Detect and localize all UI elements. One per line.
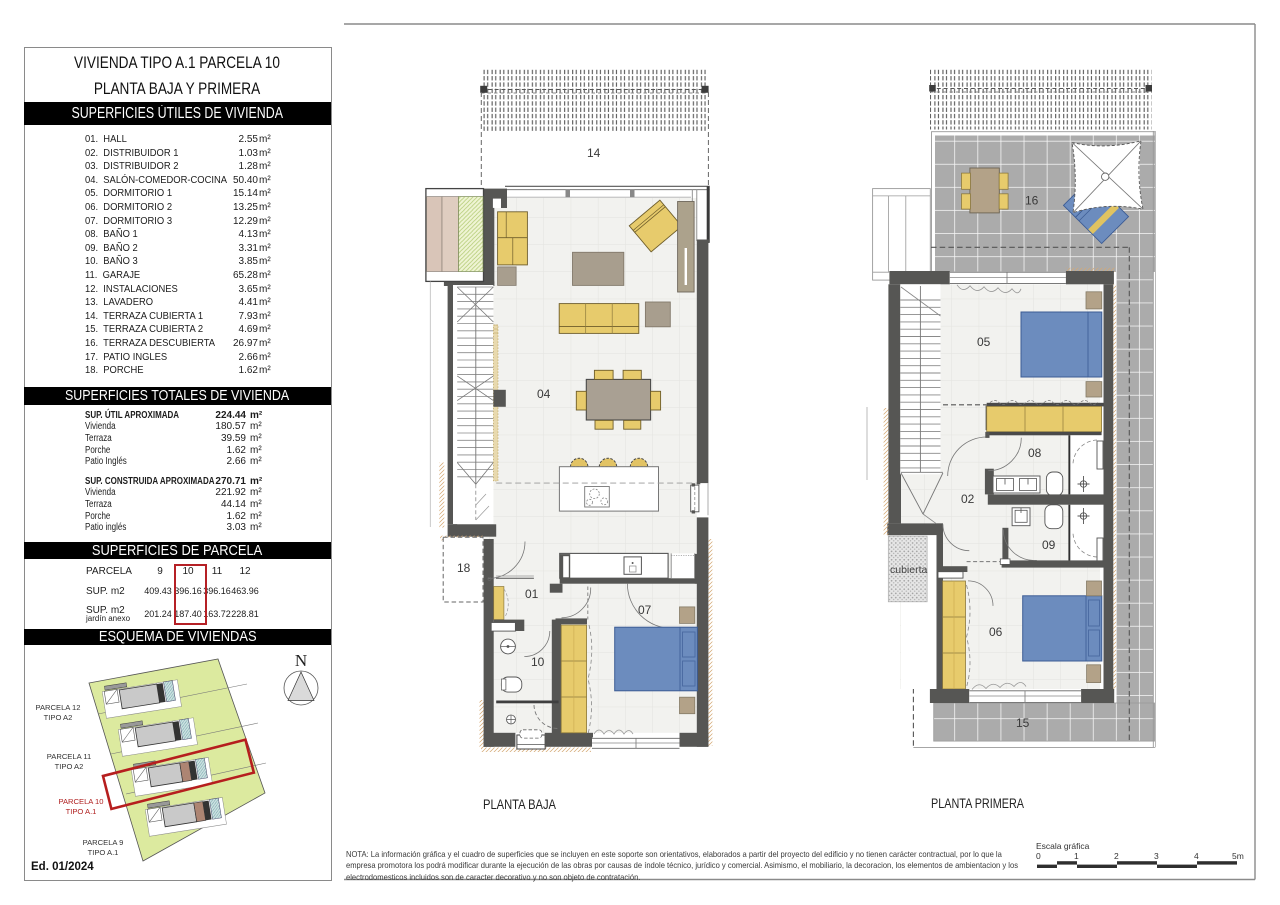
- svg-text:PARCELA 11: PARCELA 11: [47, 752, 91, 761]
- svg-text:01: 01: [525, 587, 539, 601]
- svg-text:PLANTA BAJA: PLANTA BAJA: [483, 797, 556, 812]
- svg-text:08: 08: [1028, 446, 1042, 460]
- svg-text:PARCELA 10: PARCELA 10: [58, 797, 103, 806]
- svg-text:TIPO A.1: TIPO A.1: [66, 807, 97, 816]
- svg-text:TIPO A2: TIPO A2: [44, 713, 73, 722]
- svg-text:PARCELA 9: PARCELA 9: [83, 838, 124, 847]
- svg-text:15: 15: [1016, 716, 1030, 730]
- svg-text:09: 09: [1042, 538, 1056, 552]
- svg-text:10: 10: [531, 655, 545, 669]
- svg-text:18: 18: [457, 561, 471, 575]
- svg-text:PLANTA PRIMERA: PLANTA PRIMERA: [931, 796, 1024, 811]
- svg-text:TIPO A.1: TIPO A.1: [88, 848, 119, 857]
- svg-text:05: 05: [977, 335, 991, 349]
- svg-text:N: N: [295, 651, 307, 670]
- svg-text:14: 14: [587, 146, 601, 160]
- svg-text:07: 07: [638, 603, 652, 617]
- svg-text:06: 06: [989, 625, 1003, 639]
- svg-text:TIPO A2: TIPO A2: [55, 762, 84, 771]
- svg-text:04: 04: [537, 387, 551, 401]
- svg-text:16: 16: [1025, 194, 1039, 208]
- svg-text:cubierta: cubierta: [890, 564, 928, 576]
- svg-text:PARCELA 12: PARCELA 12: [35, 703, 80, 712]
- svg-text:02: 02: [961, 492, 975, 506]
